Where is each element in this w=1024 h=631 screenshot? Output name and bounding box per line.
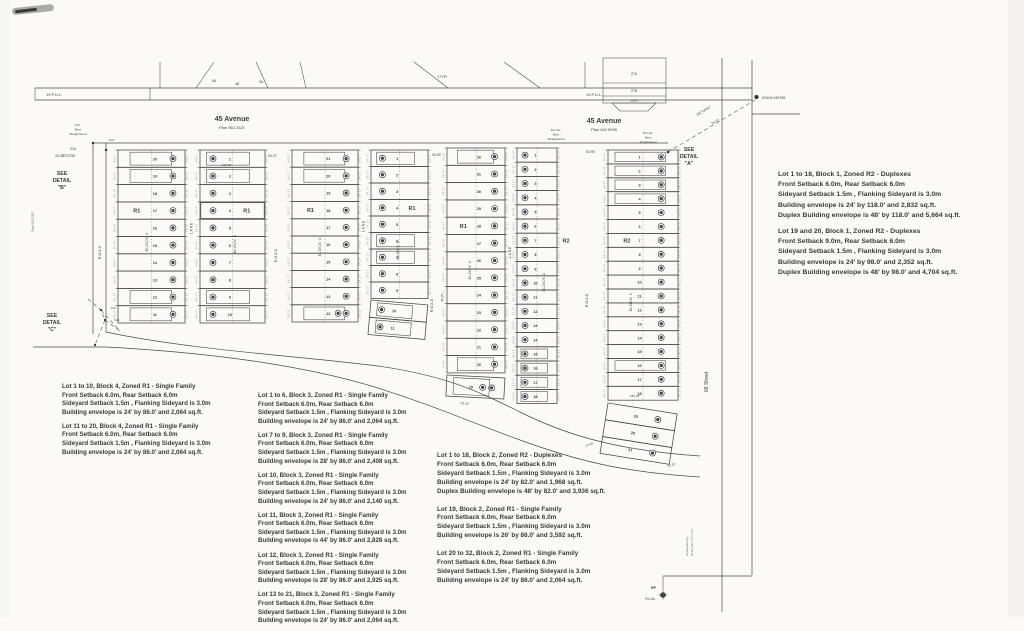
ascm-monument-dot (755, 95, 759, 99)
lot-edge-dimension: 24.17 (427, 170, 431, 179)
monument-note: Fd.I. (75, 123, 81, 127)
west-plan-label: Plan 952 2327 (31, 211, 35, 232)
lot-edge-dimension: 24.17 (442, 360, 446, 369)
building-envelope-outline (130, 152, 172, 165)
zoning-note: Lot 19, Block 2, Zoned R1 - Single Famil… (437, 506, 642, 542)
survey-monument-dot (104, 319, 106, 321)
lot-number: 32 (477, 155, 481, 159)
lot-edge-dimension: 24.17 (556, 236, 560, 245)
lot-number: 21 (326, 157, 330, 161)
lot-edge-dimension: 24.17 (603, 389, 607, 398)
lot-edge-dimension: 24.17 (184, 310, 188, 319)
lot-edge-dimension: 24.17 (442, 204, 446, 213)
dim-label: 53.95' (586, 150, 595, 154)
lot-edge-dimension: 24.17 (556, 250, 560, 259)
zone-label: R1 (133, 209, 140, 215)
fdi-label: Fd.I. (111, 306, 117, 310)
block-name-label: BLOCK 3 (318, 238, 322, 257)
lot-edge-dimension: 24.17 (442, 273, 446, 282)
roadwidening-label: Roadwidening (685, 537, 689, 556)
lot-number: 27 (477, 242, 481, 246)
block-name-label: BLOCK 3 (396, 241, 400, 260)
lot-edge-dimension: 24.17 (442, 308, 446, 317)
detail-c-leader (88, 299, 105, 345)
lot-edge-dimension: 24.17 (427, 286, 431, 295)
note-line: Building envelope is 24' by 98.0' and 2,… (778, 258, 1023, 268)
note-line: Sideyard Setback 1.5m , Flanking Sideyar… (437, 568, 642, 577)
road-label: ROAD (98, 245, 102, 259)
lot-edge-dimension: 24.17 (556, 378, 560, 387)
lot-edge-dimension: 24.17 (287, 309, 291, 318)
lot-edge-dimension: 24.17 (504, 291, 508, 300)
lot-number: 25 (477, 276, 481, 280)
lot-number: 19 (633, 414, 638, 419)
zoning-note: Lot 13 to 21, Block 3, Zoned R1 - Single… (258, 591, 453, 625)
lot-edge-dimension: 24.17 (287, 154, 291, 163)
lot-number: 11 (390, 326, 394, 330)
note-line: Building envelope is 26' by 86.0' and 3,… (437, 532, 642, 541)
lot-edge-dimension: 24.17 (195, 241, 199, 250)
lot-edge-dimension: 24.17 (357, 309, 361, 318)
ascm-label: ASCM 945769 (762, 96, 785, 100)
lot-edge-dimension: 24.17 (504, 170, 508, 179)
lot-edge-dimension: 24.17 (556, 179, 560, 188)
lot-edge-dimension: 24.17 (512, 279, 516, 288)
monument-note: Bent (553, 133, 559, 137)
lot-edge-dimension: 24.17 (603, 347, 607, 356)
lot-number: 29 (477, 207, 481, 211)
lot-edge-dimension: 24.17 (504, 360, 508, 369)
note-line: Building envelope is 44' by 86.0' and 2,… (258, 537, 453, 546)
avenue-west-plan: Plan 952 2327 (219, 125, 246, 130)
monument-note: Bent (645, 136, 651, 140)
lot-number: 12 (533, 310, 537, 314)
note-line: Building envelope is 24' by 82.0' and 1,… (437, 479, 642, 488)
lot-number: 9 (534, 267, 536, 271)
monument-note: Straightened (547, 137, 564, 141)
lot-number: 1 (534, 154, 536, 158)
lot-edge-dimension: 24.17 (184, 206, 188, 215)
lot-edge-dimension: 24.17 (677, 236, 681, 245)
lot-edge-dimension: 24.17 (603, 180, 607, 189)
zoning-notes-block4: Lot 1 to 10, Block 4, Zoned R1 - Single … (62, 383, 262, 463)
lot-edge-dimension: 24.17 (357, 275, 361, 284)
lot-number: 13 (637, 322, 641, 326)
lot-edge-dimension: 24.17 (603, 194, 607, 203)
lot-number: 8 (229, 278, 231, 282)
avenue-east-name: 45 Avenue (587, 118, 622, 125)
zone-label: R2 (623, 238, 630, 244)
lot-edge-dimension: 24.17 (512, 236, 516, 245)
lot-edge-dimension: 24.17 (603, 208, 607, 217)
lot-number: 15 (637, 350, 641, 354)
lot-edge-dimension: 24.17 (556, 208, 560, 217)
lot-edge-dimension: 24.17 (442, 187, 446, 196)
monument-note: Bent (75, 128, 81, 132)
lot-number: 20 (477, 363, 481, 367)
lot-edge-dimension: 24.17 (556, 350, 560, 359)
note-line: Duplex Building envelope is 48' by 82.0'… (437, 488, 642, 497)
lot-edge-dimension: 24.17 (677, 166, 681, 175)
lot-number: 18 (326, 209, 330, 213)
note-line: Lot 12, Block 3, Zoned R1 - Single Famil… (258, 552, 453, 561)
lot-number: 4 (229, 209, 232, 213)
lot-edge-dimension: 24.17 (677, 361, 681, 370)
lot-number: 6 (534, 225, 536, 229)
lot-number: 22 (477, 328, 481, 332)
lot-edge-dimension: 24.17 (427, 187, 431, 196)
lot-edge-dimension: 24.17 (195, 310, 199, 319)
lot-edge-dimension: 24.17 (603, 166, 607, 175)
lot-edge-dimension: 24.17 (512, 208, 516, 217)
lot-number: 18 (533, 395, 537, 399)
lot-number: 8 (396, 272, 398, 276)
survey-monument-dot (105, 149, 107, 151)
dim-label: 33.29' (55, 154, 64, 158)
monument-note: Straightened (69, 132, 86, 136)
lot-edge-dimension: 24.17 (512, 378, 516, 387)
zoning-notes-block1: Lot 1 to 18, Block 1, Zoned R2 - Duplexe… (778, 170, 1023, 284)
zoning-notes-block2: Lot 1 to 18, Block 2, Zoned R2 - Duplexe… (437, 452, 642, 595)
lot-edge-dimension: 24.17 (113, 293, 117, 302)
lot-edge-dimension: 24.17 (287, 275, 291, 284)
zoning-notes-block3: Lot 1 to 6, Block 3, Zoned R1 - Single F… (258, 392, 453, 631)
parcel-label: 4B (235, 82, 240, 86)
dim-label: 21.23' (667, 462, 676, 468)
lot-edge-dimension: 24.17 (556, 222, 560, 231)
note-line: Lot 7 to 9, Block 3, Zoned R1 - Single F… (258, 432, 453, 441)
note-line: Sideyard Setback 1.5m , Flanking Sideyar… (437, 470, 642, 479)
lot-edge-dimension: 24.17 (556, 293, 560, 302)
lot-edge-dimension: 24.17 (287, 292, 291, 301)
note-line: Building envelope is 24' by 86.0' and 2,… (62, 409, 262, 418)
building-envelope-outline (130, 291, 172, 304)
lot-edge-dimension: 24.17 (677, 292, 681, 301)
lot-edge-dimension: 24.17 (512, 335, 516, 344)
parcel-label-287b: 287B (630, 99, 637, 103)
lot-edge-dimension: 24.17 (512, 307, 516, 316)
note-line: Sideyard Setback 1.5m , Flanking Sideyar… (258, 529, 453, 538)
lot-number: 13 (153, 278, 157, 282)
note-line: Front Setback 6.0m, Rear Setback 6.0m (258, 401, 453, 410)
lot-edge-dimension: 24.17 (184, 275, 188, 284)
lot-number: 12 (153, 296, 157, 300)
lot-number: 20 (326, 174, 330, 178)
lot-number: 17 (153, 209, 157, 213)
lot-number: 2 (229, 175, 231, 179)
lot-number: 3 (534, 182, 536, 186)
note-line: Lot 1 to 18, Block 2, Zoned R2 - Duplexe… (437, 452, 642, 461)
lot-edge-dimension: 24.17 (113, 310, 117, 319)
lot-edge-dimension: 24.17 (512, 264, 516, 273)
lot-edge-dimension: 24.17 (603, 361, 607, 370)
lot-edge-dimension: 24.17 (556, 307, 560, 316)
lot-number: 14 (326, 278, 331, 282)
lane-label: LANE (190, 222, 194, 234)
lot-edge-dimension: 24.17 (113, 189, 117, 198)
lot-edge-dimension: 24.17 (442, 256, 446, 265)
parcel-label: 9A (259, 80, 264, 84)
lot-boundary (605, 403, 677, 431)
lot-number: 21 (477, 346, 481, 350)
lot-edge-dimension: 24.17 (512, 222, 516, 231)
see-detail-b: "B" (58, 185, 67, 191)
lot-edge-dimension: 24.17 (603, 222, 607, 231)
rp-label: RP (651, 586, 657, 590)
lot-number: 10 (533, 282, 537, 286)
dim-label: 33.09' (432, 153, 441, 157)
zoning-note: Lot 11, Block 3, Zoned R1 - Single Famil… (258, 512, 453, 546)
parcel-label-27a: 27A (631, 72, 638, 76)
street-68-label: 68 Street (704, 371, 710, 392)
lot-number: 3 (396, 190, 398, 194)
lot-number: 18 (637, 392, 641, 396)
lot-edge-dimension: 24.17 (113, 154, 117, 163)
lot-edge-dimension: 24.17 (556, 335, 560, 344)
lot-edge-dimension: 24.17 (512, 179, 516, 188)
lot-number: 15 (533, 353, 537, 357)
parcel-line (196, 62, 214, 88)
note-line: Lot 11 to 20, Block 4, Zoned R1 - Single… (62, 423, 262, 432)
lot-edge-dimension: 24.17 (442, 325, 446, 334)
lot-edge-dimension: 24.17 (427, 203, 431, 212)
lot-edge-dimension: 24.17 (184, 189, 188, 198)
lot-edge-dimension: 24.17 (512, 151, 516, 160)
lot-edge-dimension: 24.17 (287, 257, 291, 266)
note-line: Lot 20 to 32, Block 2, Zoned R1 - Single… (437, 550, 642, 559)
lot-number: 5 (534, 211, 536, 215)
note-line: Lot 13 to 21, Block 3, Zoned R1 - Single… (258, 591, 453, 600)
zoning-note: Lot 10, Block 3, Zoned R1 - Single Famil… (258, 472, 453, 506)
lot-edge-dimension: 24.17 (264, 241, 268, 250)
lot-edge-dimension: 24.17 (195, 293, 199, 302)
lot-edge-dimension: 24.17 (113, 258, 117, 267)
lot-number: 15 (153, 244, 157, 248)
note-line: Building envelope is 24' by 86.0' and 2,… (437, 577, 642, 586)
lot-edge-dimension: 24.17 (504, 221, 508, 230)
note-line: Lot 19 and 20, Block 1, Zoned R2 - Duple… (778, 227, 1023, 237)
lot-edge-dimension: 24.17 (442, 221, 446, 230)
lot-edge-dimension: 24.17 (357, 154, 361, 163)
lot-number: 1 (229, 157, 231, 161)
lot-number: 17 (326, 226, 330, 230)
zoning-note: Lot 11 to 20, Block 4, Zoned R1 - Single… (62, 423, 262, 457)
note-line: Building envelope is 24' by 86.0' and 2,… (258, 617, 453, 626)
note-line: Sideyard Setback 1.5m , Flanking Sideyar… (62, 440, 262, 449)
parcel-label-27b: 27B (631, 89, 638, 93)
building-envelope-outline (130, 308, 172, 321)
lot-edge-dimension: 24.17 (512, 165, 516, 174)
lot-number: 18 (153, 192, 157, 196)
zone-label: R2 (562, 238, 569, 244)
fdi-label: Fd.I. (109, 138, 115, 142)
parcel-label-17yr: 17YR (437, 74, 447, 79)
lot-edge-dimension: 24.17 (677, 222, 681, 231)
lot-boundary (603, 420, 675, 448)
lot-edge-dimension: 24.17 (677, 153, 681, 162)
lot-edge-dimension: 24.17 (366, 236, 370, 245)
lot-edge-dimension: 24.17 (366, 220, 370, 229)
lot-edge-dimension: 24.17 (442, 291, 446, 300)
lot-number: 12 (326, 312, 330, 316)
lot-edge-dimension: 24.17 (287, 189, 291, 198)
lot-edge-dimension: 24.17 (357, 257, 361, 266)
note-line: Building envelope is 24' by 86.0' and 2,… (258, 418, 453, 427)
note-line: Sideyard Setback 1.5m , Flanking Sideyar… (258, 409, 453, 418)
lot-edge-dimension: 24.17 (556, 321, 560, 330)
lot-number: 11 (153, 313, 157, 317)
lot-number: 14 (153, 261, 158, 265)
lot-edge-dimension: 24.17 (113, 241, 117, 250)
parcel-line (256, 62, 268, 88)
lot-number: 20 (153, 157, 157, 161)
lot-edge-dimension: 24.17 (512, 193, 516, 202)
note-line: Duplex Building envelope is 48' by 98.0'… (778, 268, 1023, 278)
note-line: Front Setback 6.0m, Rear Setback 6.0m (437, 559, 642, 568)
lot-edge-dimension: 24.17 (264, 206, 268, 215)
lot-number: 16 (153, 226, 157, 230)
lot-edge-dimension: 24.17 (264, 258, 268, 267)
lot-number: 24 (477, 294, 482, 298)
note-line: Front Setback 6.0m, Rear Setback 6.0m (258, 520, 453, 529)
lot-number: 6 (229, 244, 231, 248)
note-line: Front Setback 6.0m, Rear Setback 6.0m (62, 392, 262, 401)
note-line: Front Setback 6.0m, Rear Setback 6.0m (258, 560, 453, 569)
lot-edge-dimension: 24.17 (603, 264, 607, 273)
lot-edge-dimension: 24.17 (677, 264, 681, 273)
zoning-note: Lot 1 to 18, Block 1, Zoned R2 - Duplexe… (778, 170, 1023, 221)
lot-edge-dimension: 24.17 (677, 208, 681, 217)
lot-boundary (369, 300, 427, 322)
lot-edge-dimension: 24.17 (264, 154, 268, 163)
survey-monument-dot (94, 344, 96, 346)
zoning-note: Lot 20 to 32, Block 2, Zoned R1 - Single… (437, 550, 642, 586)
lot-edge-dimension: 24.17 (357, 206, 361, 215)
parcel-line (504, 62, 540, 88)
lot-edge-dimension: 24.17 (264, 293, 268, 302)
lot-edge-dimension: 24.17 (504, 325, 508, 334)
lot-edge-dimension: 24.17 (442, 152, 446, 161)
road-label: ROAD (274, 248, 278, 262)
lot-edge-dimension: 24.17 (512, 350, 516, 359)
angled-lots-group: 19 (446, 375, 505, 399)
survey-monument-dot (92, 142, 94, 144)
lot-edge-dimension: 24.17 (603, 236, 607, 245)
lot-edge-dimension: 24.17 (603, 250, 607, 259)
building-envelope-outline (130, 170, 172, 183)
lot-number: 10 (637, 281, 641, 285)
lot-edge-dimension: 24.17 (603, 305, 607, 314)
block-name-label: BLOCK 2 (468, 261, 472, 280)
lot-number: 15 (326, 260, 330, 264)
zone-label: R1 (409, 206, 416, 212)
lot-edge-dimension: 24.17 (184, 293, 188, 302)
lot-edge-dimension: 24.17 (504, 343, 508, 352)
note-line: Lot 10, Block 3, Zoned R1 - Single Famil… (258, 472, 453, 481)
lot-edge-dimension: 24.17 (504, 152, 508, 161)
lot-edge-dimension: 24.17 (442, 343, 446, 352)
lot-edge-dimension: 24.17 (184, 223, 188, 232)
parcel-line (300, 62, 306, 88)
lot-edge-dimension: 24.17 (677, 347, 681, 356)
lot-number: 7 (229, 261, 231, 265)
lot-number: 16 (326, 243, 330, 247)
lot-edge-dimension: 24.17 (113, 172, 117, 181)
lot-edge-dimension: 24.17 (677, 194, 681, 203)
road-label: ROAD (585, 293, 589, 307)
lot-number: 26 (477, 259, 481, 263)
lot-edge-dimension: 24.17 (264, 172, 268, 181)
see-detail-c: SEE (47, 313, 58, 319)
zone-label: R1 (307, 208, 314, 214)
lot-edge-dimension: 24.17 (195, 258, 199, 267)
lot-edge-dimension: 24.17 (195, 154, 199, 163)
monument-note: Fd.I.&c. (551, 128, 562, 132)
zoning-note: Lot 12, Block 3, Zoned R1 - Single Famil… (258, 552, 453, 586)
see-detail-a: "A" (685, 161, 694, 167)
lot-edge-dimension: 24.17 (357, 240, 361, 249)
zone-label: R1 (460, 224, 467, 230)
lot-number: 13 (326, 295, 330, 299)
lot-edge-dimension: 24.17 (366, 154, 370, 163)
pul-label-west: 19 P.U.L. (46, 92, 62, 97)
lot-number: 16 (533, 367, 537, 371)
note-line: Sideyard Setback 1.5m , Flanking Sideyar… (258, 489, 453, 498)
note-line: Building envelope is 28' by 86.0' and 2,… (258, 577, 453, 586)
lot-edge-dimension: 24.17 (427, 253, 431, 262)
lot-number: 10 (392, 309, 397, 313)
monument-note: Fd.I.&c. (643, 131, 654, 135)
lot-number: 19 (326, 192, 330, 196)
lot-edge-dimension: 24.17 (366, 253, 370, 262)
lot-edge-dimension: 24.17 (195, 172, 199, 181)
lot-number: 17 (533, 381, 537, 385)
lot-edge-dimension: 24.17 (184, 258, 188, 267)
note-line: Lot 11, Block 3, Zoned R1 - Single Famil… (258, 512, 453, 521)
parcel-trapezoid (612, 103, 656, 111)
lot-edge-dimension: 24.17 (287, 223, 291, 232)
lot-number: 6 (638, 225, 640, 229)
lot-number: 5 (638, 211, 640, 215)
lot-edge-dimension: 24.17 (504, 308, 508, 317)
lot-number: 4 (638, 197, 641, 201)
lot-number: 7 (638, 239, 640, 243)
lot-edge-dimension: 24.17 (677, 319, 681, 328)
lot-number: 2 (638, 169, 640, 173)
lot-edge-dimension: 24.17 (184, 154, 188, 163)
note-line: Sideyard Setback 1.5m , Flanking Sideyar… (258, 609, 453, 618)
lot-edge-dimension: 24.17 (556, 165, 560, 174)
lot-number: 1 (638, 156, 640, 160)
note-line: Front Setback 6.0m, Rear Setback 6.0m (778, 180, 1023, 190)
lot-edge-dimension: 24.17 (677, 333, 681, 342)
tie-bearing: 242°30'52" (696, 105, 713, 117)
lot-edge-dimension: 24.17 (195, 206, 199, 215)
lot-number: 1 (396, 157, 398, 161)
lot-edge-dimension: 24.17 (195, 275, 199, 284)
see-detail-a: DETAIL (680, 154, 699, 160)
lot-number: 4 (396, 206, 399, 210)
note-line: Building envelope is 28' by 86.0' and 2,… (258, 458, 453, 467)
lot-edge-dimension: 24.17 (603, 319, 607, 328)
lot-edge-dimension: 24.17 (512, 321, 516, 330)
block-name-label: BLOCK 4 (233, 235, 237, 254)
lot-edge-dimension: 24.17 (264, 275, 268, 284)
zoning-note: Lot 19 and 20, Block 1, Zoned R2 - Duple… (778, 227, 1023, 278)
note-line: Building envelope is 24' by 86.0' and 2,… (258, 498, 453, 507)
lot-edge-dimension: 24.17 (556, 151, 560, 160)
note-line: Front Setback 6.0m, Rear Setback 6.0m (258, 480, 453, 489)
